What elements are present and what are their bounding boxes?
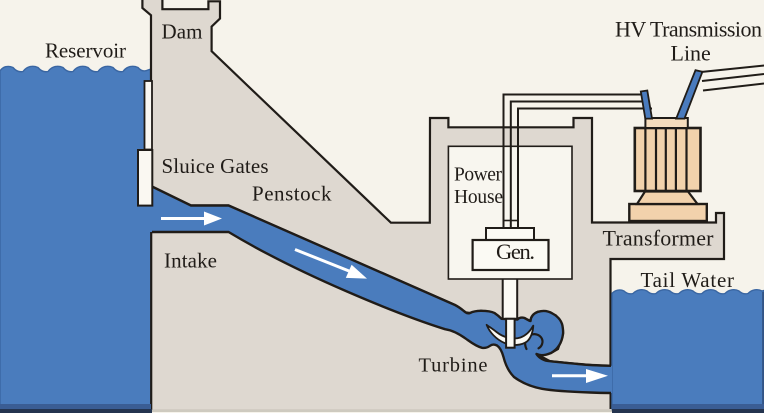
svg-text:Line: Line <box>671 41 711 66</box>
svg-text:Turbine: Turbine <box>419 355 488 377</box>
svg-text:Gen.: Gen. <box>496 239 535 264</box>
svg-text:Intake: Intake <box>164 249 217 273</box>
svg-text:Tail Water: Tail Water <box>641 268 735 292</box>
svg-text:House: House <box>454 187 503 208</box>
svg-text:Penstock: Penstock <box>252 182 332 206</box>
svg-text:Dam: Dam <box>162 20 203 44</box>
svg-text:Power: Power <box>454 165 503 186</box>
svg-text:Sluice Gates: Sluice Gates <box>162 154 269 178</box>
svg-text:Transformer: Transformer <box>603 226 715 251</box>
svg-text:HV Transmission: HV Transmission <box>615 17 762 42</box>
svg-text:Reservoir: Reservoir <box>45 39 126 63</box>
